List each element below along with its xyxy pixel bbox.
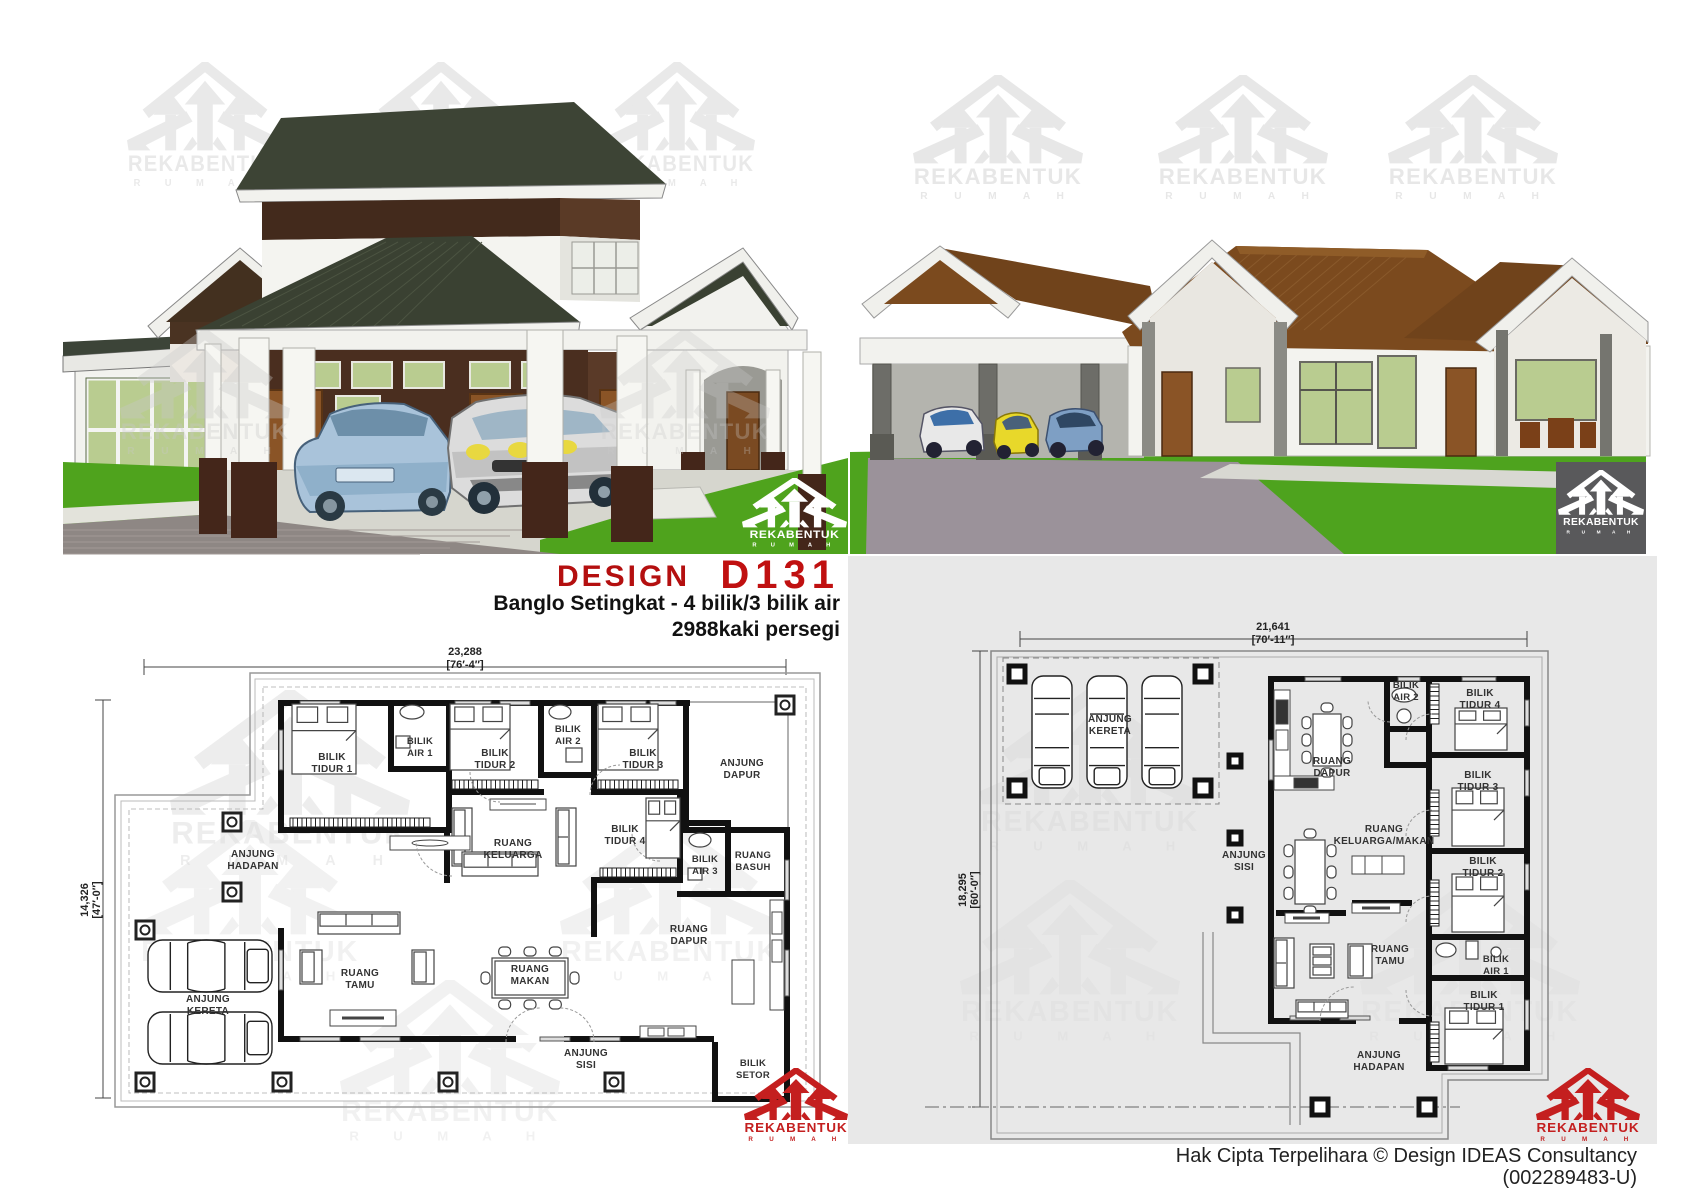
svg-text:14,326: 14,326 [79,883,91,917]
svg-text:BILIK: BILIK [407,736,433,747]
svg-text:Banglo Setingkat - 4 bilik/3 b: Banglo Setingkat - 4 bilik/3 bilik air [493,592,840,615]
svg-text:AIR 2: AIR 2 [1393,692,1419,703]
svg-text:23,288: 23,288 [448,646,482,658]
svg-text:[70′-11″]: [70′-11″] [1252,634,1295,646]
svg-text:TIDUR 3: TIDUR 3 [623,760,664,771]
svg-text:21,641: 21,641 [1256,621,1290,633]
svg-text:ANJUNG: ANJUNG [720,758,764,769]
svg-text:BILIK: BILIK [1393,680,1419,691]
svg-text:2988kaki persegi: 2988kaki persegi [672,618,840,641]
svg-text:BASUH: BASUH [735,862,770,873]
svg-text:KERETA: KERETA [1089,726,1131,737]
svg-text:TIDUR 2: TIDUR 2 [475,760,516,771]
svg-text:DAPUR: DAPUR [670,936,708,947]
svg-text:TIDUR 3: TIDUR 3 [1458,782,1499,793]
svg-text:BILIK: BILIK [611,824,639,835]
svg-text:D131: D131 [720,553,840,597]
svg-text:RUANG: RUANG [494,838,532,849]
svg-text:HADAPAN: HADAPAN [227,861,278,872]
svg-text:DAPUR: DAPUR [723,770,761,781]
svg-text:ANJUNG: ANJUNG [1088,714,1132,725]
svg-text:R U M A H: R U M A H [752,543,836,549]
svg-text:[76′-4″]: [76′-4″] [446,659,484,671]
svg-text:SISI: SISI [576,1060,596,1071]
svg-text:KELUARGA: KELUARGA [483,850,542,861]
svg-text:[47′-0″]: [47′-0″] [91,881,103,919]
svg-text:RUANG: RUANG [735,850,771,861]
svg-text:BILIK: BILIK [1470,990,1498,1001]
svg-text:AIR 1: AIR 1 [1483,966,1509,977]
svg-text:BILIK: BILIK [555,724,581,735]
svg-text:BILIK: BILIK [740,1058,766,1069]
svg-text:REKABENTUK: REKABENTUK [750,529,840,540]
svg-text:BILIK: BILIK [481,748,509,759]
svg-text:BILIK: BILIK [1466,688,1494,699]
svg-text:ANJUNG: ANJUNG [1222,850,1266,861]
svg-text:Hak Cipta Terpelihara © Desig: Hak Cipta Terpelihara © Design IDEAS Con… [1176,1145,1637,1167]
svg-text:R U M A H: R U M A H [1567,530,1636,536]
svg-text:TIDUR 4: TIDUR 4 [605,836,646,847]
svg-text:TIDUR 4: TIDUR 4 [1460,700,1501,711]
svg-text:(002289483-U): (002289483-U) [1502,1167,1637,1189]
svg-text:TAMU: TAMU [1375,956,1404,967]
svg-text:KELUARGA/MAKAN: KELUARGA/MAKAN [1334,836,1435,847]
svg-text:TIDUR 2: TIDUR 2 [1463,868,1504,879]
svg-text:BILIK: BILIK [1464,770,1492,781]
svg-text:RUANG: RUANG [1371,944,1409,955]
svg-text:AIR 2: AIR 2 [555,736,581,747]
svg-text:REKABENTUK: REKABENTUK [1563,517,1639,528]
svg-text:BILIK: BILIK [318,752,346,763]
svg-text:RUANG: RUANG [341,968,379,979]
svg-text:KERETA: KERETA [187,1006,229,1017]
svg-text:HADAPAN: HADAPAN [1353,1062,1404,1073]
svg-text:AIR 1: AIR 1 [407,748,433,759]
svg-text:BILIK: BILIK [692,854,718,865]
svg-text:BILIK: BILIK [629,748,657,759]
svg-text:SETOR: SETOR [736,1070,770,1081]
svg-text:BILIK: BILIK [1483,954,1509,965]
svg-text:RUANG: RUANG [1313,756,1351,767]
svg-text:RUANG: RUANG [1365,824,1403,835]
svg-text:BILIK: BILIK [1469,856,1497,867]
svg-text:ANJUNG: ANJUNG [564,1048,608,1059]
svg-text:[60′-0″]: [60′-0″] [969,871,981,909]
svg-text:ANJUNG: ANJUNG [186,994,230,1005]
svg-text:AIR 3: AIR 3 [692,866,718,877]
svg-text:TIDUR 1: TIDUR 1 [312,764,353,775]
svg-text:ANJUNG: ANJUNG [1357,1050,1401,1061]
svg-text:SISI: SISI [1234,862,1254,873]
svg-text:RUANG: RUANG [511,964,549,975]
svg-text:TIDUR 1: TIDUR 1 [1464,1002,1505,1013]
svg-text:ANJUNG: ANJUNG [231,849,275,860]
svg-text:DESIGN: DESIGN [557,560,690,593]
svg-text:TAMU: TAMU [345,980,374,991]
svg-text:18,295: 18,295 [957,873,969,907]
svg-text:DAPUR: DAPUR [1313,768,1351,779]
svg-text:RUANG: RUANG [670,924,708,935]
svg-text:MAKAN: MAKAN [511,976,550,987]
